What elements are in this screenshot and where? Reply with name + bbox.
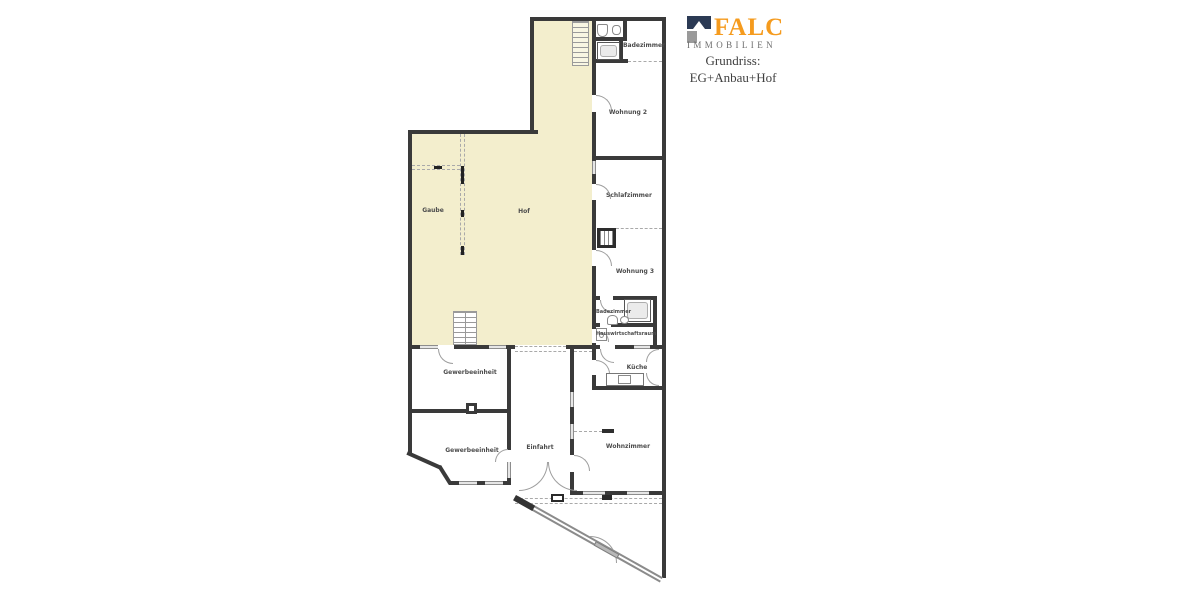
toilet-icon xyxy=(597,24,608,37)
door-arc xyxy=(438,349,453,364)
window xyxy=(570,392,574,407)
brand-subtitle: IMMOBILIEN xyxy=(687,40,776,50)
window xyxy=(583,491,605,495)
window xyxy=(570,424,574,439)
post xyxy=(602,495,612,500)
dashed-line xyxy=(515,498,662,499)
stairs xyxy=(597,228,616,248)
window xyxy=(420,345,438,349)
room-label-gewerbeeinheit-1: Gewerbeeinheit xyxy=(440,370,500,376)
wall xyxy=(530,17,666,21)
gaube-dashed-line xyxy=(464,134,465,255)
dashed-line xyxy=(616,228,662,229)
door-arc xyxy=(646,349,659,362)
room-label-badezimmer-og: Badezimmer xyxy=(622,43,666,49)
wall xyxy=(653,296,657,345)
dashed-line xyxy=(515,503,662,504)
window xyxy=(485,481,503,485)
room-label-wohnzimmer: Wohnzimmer xyxy=(600,444,656,450)
dashed-line xyxy=(515,346,566,347)
room-label-hauswirtschaftsraum: Hauswirtschaftsraum xyxy=(596,332,648,337)
room-label-wohnung-2: Wohnung 2 xyxy=(600,110,656,116)
room-label-hof: Hof xyxy=(506,209,542,215)
wall-stub xyxy=(434,166,442,169)
window xyxy=(507,462,511,478)
dashed-line xyxy=(628,61,662,62)
gaube-dashed-line xyxy=(412,169,460,170)
post xyxy=(551,494,564,502)
fence-diagonal xyxy=(515,496,663,582)
stairs xyxy=(572,21,589,66)
window xyxy=(459,481,477,485)
wall-stub xyxy=(602,429,614,433)
window xyxy=(627,491,649,495)
dashed-line xyxy=(574,351,592,352)
door-arc xyxy=(519,462,548,491)
wall xyxy=(592,156,662,160)
plan-title-line1: Grundriss: xyxy=(678,53,788,69)
window xyxy=(489,345,506,349)
wall xyxy=(530,17,534,134)
window xyxy=(592,161,596,174)
room-label-gaube: Gaube xyxy=(415,208,451,214)
door-arc xyxy=(646,373,659,386)
wall-stub xyxy=(461,246,464,255)
wall-stub xyxy=(461,166,464,184)
room-label-schlafzimmer: Schlafzimmer xyxy=(600,193,658,199)
floorplan-page: FALC IMMOBILIEN Grundriss: EG+Anbau+Hof xyxy=(0,0,1200,600)
wall xyxy=(408,130,412,455)
room-label-wohnung-3: Wohnung 3 xyxy=(607,269,663,275)
plan-title-line2: EG+Anbau+Hof xyxy=(678,70,788,86)
window xyxy=(634,345,650,349)
room-label-einfahrt: Einfahrt xyxy=(515,445,565,451)
door-arc xyxy=(548,462,577,491)
stairs xyxy=(453,311,477,345)
sink-icon xyxy=(620,316,629,324)
room-label-badezimmer-w3: Badezimmer xyxy=(596,310,628,315)
wall-stub xyxy=(461,210,464,217)
gaube-dashed-line xyxy=(460,134,461,255)
door-arc xyxy=(596,360,610,374)
brand-name: FALC xyxy=(714,15,784,40)
sink-icon xyxy=(612,25,621,35)
door-arc xyxy=(596,250,612,266)
dashed-line xyxy=(515,351,566,352)
wall xyxy=(412,409,511,413)
room-label-kueche: Küche xyxy=(620,365,654,371)
wall xyxy=(594,386,662,390)
shower-icon xyxy=(597,42,620,60)
room-label-gewerbeeinheit-2: Gewerbeeinheit xyxy=(442,448,502,454)
wall xyxy=(408,130,538,134)
dashed-line xyxy=(574,431,602,432)
wall-pillar xyxy=(466,403,477,414)
kitchen-sink-icon xyxy=(618,375,631,384)
toilet-icon xyxy=(607,315,618,325)
